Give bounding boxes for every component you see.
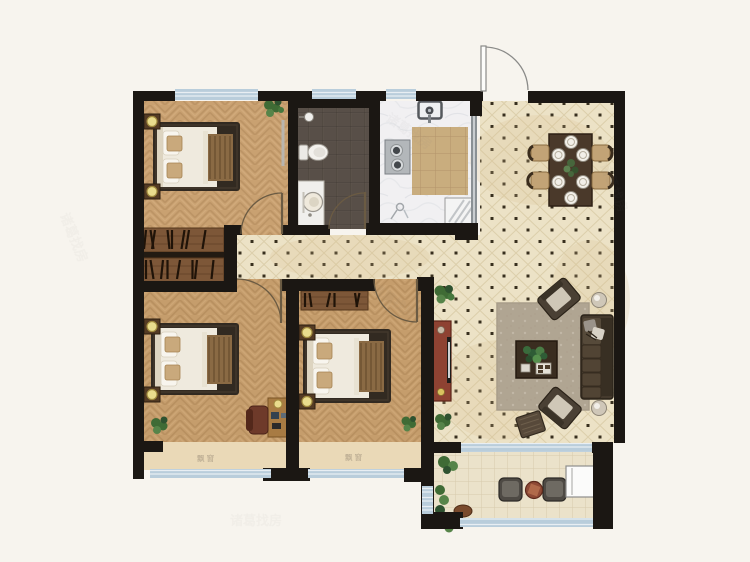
svg-text:诸葛找房: 诸葛找房 (230, 513, 282, 528)
svg-text:飘 窗: 飘 窗 (345, 452, 362, 462)
svg-text:飘 窗: 飘 窗 (197, 453, 214, 463)
